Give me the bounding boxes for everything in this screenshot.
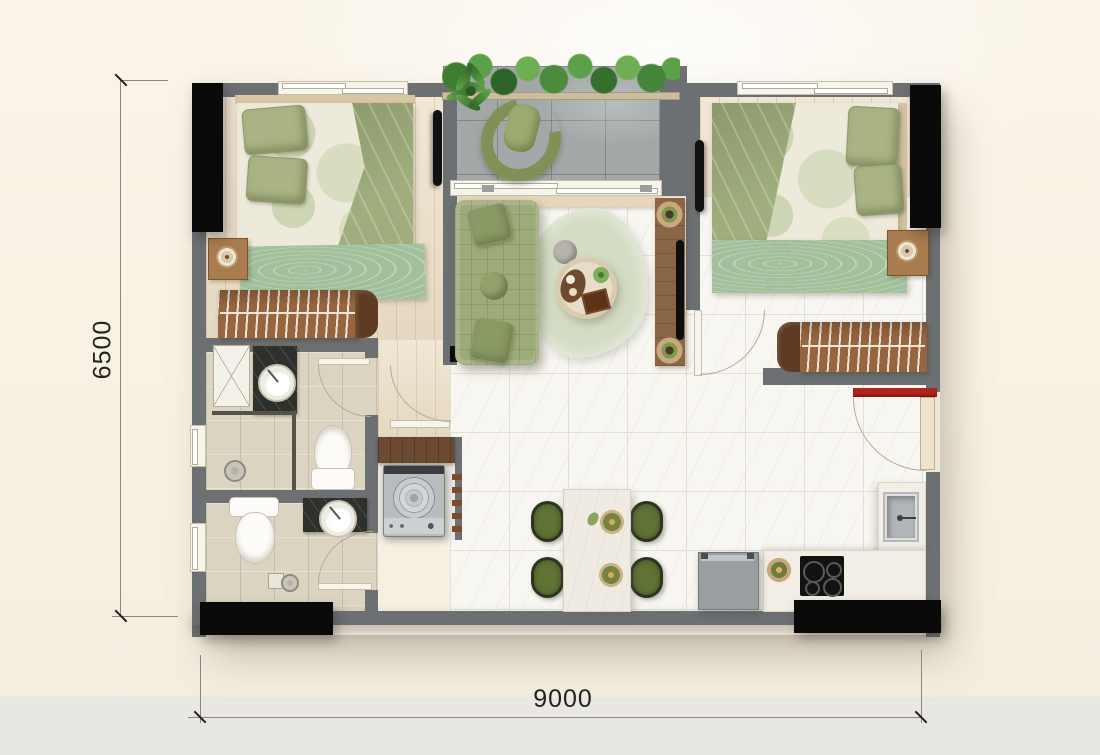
window-sash	[282, 83, 346, 89]
bedroom2-tv	[695, 140, 704, 212]
place-setting	[598, 508, 626, 536]
width-dimension-label: 9000	[508, 685, 618, 714]
washer-top-strip	[384, 466, 444, 474]
slider-handle	[640, 185, 652, 192]
bedroom1-lamp	[216, 246, 238, 268]
induction-hob	[800, 556, 844, 596]
washer-drum	[393, 477, 435, 519]
bedroom1-tv	[433, 110, 442, 186]
dining-chair	[630, 557, 663, 598]
toilet-bowl	[235, 512, 275, 564]
bed-runner	[712, 240, 907, 293]
hob-burner	[826, 562, 842, 578]
wardrobe-rail	[802, 345, 925, 347]
table-book	[581, 288, 611, 315]
technical-shaft	[213, 345, 250, 407]
bedroom2-window	[737, 81, 893, 95]
window-sash	[742, 83, 818, 89]
height-dimension-label: 6500	[89, 300, 118, 400]
dining-table	[564, 490, 630, 611]
chair-seat	[534, 504, 561, 539]
fridge-handle	[701, 553, 708, 559]
balcony-sliding-door	[450, 180, 662, 196]
window-sash	[342, 88, 404, 94]
bathroom2-door-leaf	[318, 583, 372, 590]
wardrobe-end-cap	[355, 290, 378, 338]
serving-bowl	[766, 557, 792, 583]
window-sash	[814, 88, 888, 94]
washing-machine	[383, 465, 445, 537]
fridge-handle	[747, 553, 754, 559]
coffee-table	[555, 257, 617, 319]
bathroom2-window	[190, 523, 206, 572]
window-sash	[192, 429, 198, 465]
bedroom2-lamp	[896, 240, 918, 262]
dining-chair	[630, 501, 663, 542]
horizontal-dim-extension-right	[921, 650, 922, 723]
bedroom2-wardrobe	[800, 322, 927, 372]
toilet-tank	[311, 468, 355, 490]
living-tv	[676, 240, 684, 340]
hob-burner	[803, 561, 825, 583]
shower-partition	[212, 411, 296, 415]
tray-cup	[569, 288, 577, 296]
window-sash	[192, 527, 198, 570]
entry-red-lintel	[853, 388, 937, 397]
utility-counter	[378, 437, 455, 463]
chair-seat	[534, 560, 561, 595]
horizontal-dim-extension-left	[200, 655, 201, 723]
wardrobe-end-cap	[777, 322, 800, 372]
slider-panel	[454, 183, 558, 189]
tray-cup	[566, 275, 575, 284]
console-pot	[656, 337, 683, 364]
lounge-chair	[482, 96, 544, 164]
hob-burner	[805, 581, 820, 596]
shower-partition	[292, 411, 296, 490]
sofa-pillow	[469, 317, 516, 365]
dining-chair	[531, 501, 564, 542]
towel-rack	[452, 468, 462, 532]
bed-pillow	[241, 104, 309, 155]
bed-pillow	[845, 106, 900, 169]
dining-chair	[531, 557, 564, 598]
column-top-left	[192, 83, 223, 232]
fridge	[698, 552, 759, 610]
bathroom-right-wall-a	[365, 338, 378, 358]
kitchen-sink	[883, 492, 919, 542]
chair-seat	[633, 560, 660, 595]
bed-pillow	[245, 155, 308, 205]
horizontal-dimension-line	[188, 717, 922, 718]
shower-head	[281, 574, 299, 592]
column-top-right	[910, 85, 941, 228]
wardrobe-rail	[220, 312, 356, 314]
chair-seat	[633, 504, 660, 539]
bathroom-right-wall-c	[365, 590, 378, 611]
vertical-dimension-line	[120, 80, 121, 617]
slider-handle	[482, 185, 494, 192]
bedroom1-wardrobe	[218, 290, 358, 338]
bedroom1-window	[278, 81, 408, 95]
console-pot	[656, 201, 683, 228]
floor-plan-canvas: 6500 9000	[0, 0, 1100, 755]
column-bottom-left	[200, 602, 333, 635]
vertical-dim-extension-top	[120, 80, 168, 81]
column-bottom-right	[794, 600, 941, 633]
sink-faucet-arm	[903, 517, 916, 519]
bedroom2-bed	[712, 95, 907, 290]
table-plant	[593, 267, 609, 283]
bedroom1-bed	[235, 95, 415, 295]
bed-pillow	[853, 163, 904, 216]
shower-head	[224, 460, 246, 482]
bathroom1-window	[190, 425, 206, 467]
hob-burner	[823, 578, 842, 597]
sofa-ball-pillow	[480, 272, 508, 300]
plant-center	[466, 86, 476, 96]
washer-panel	[384, 518, 444, 534]
place-setting	[597, 561, 625, 589]
